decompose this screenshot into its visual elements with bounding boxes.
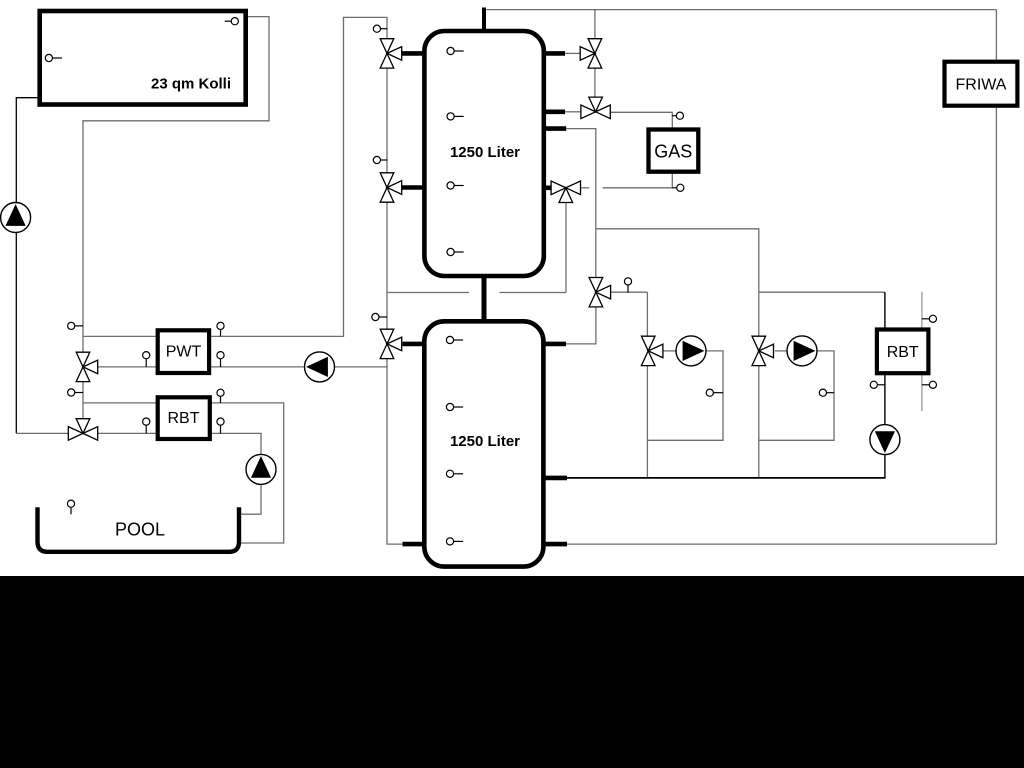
svg-text:POOL: POOL xyxy=(115,520,165,540)
svg-text:1250 Liter: 1250 Liter xyxy=(450,433,520,450)
svg-text:RBT: RBT xyxy=(168,410,200,427)
svg-text:23 qm Kolli: 23 qm Kolli xyxy=(151,76,231,93)
svg-text:RBT: RBT xyxy=(887,344,919,361)
svg-text:FRIWA: FRIWA xyxy=(956,76,1007,93)
svg-text:1250 Liter: 1250 Liter xyxy=(450,144,520,161)
svg-text:PWT: PWT xyxy=(166,343,202,360)
svg-text:GAS: GAS xyxy=(654,141,692,161)
